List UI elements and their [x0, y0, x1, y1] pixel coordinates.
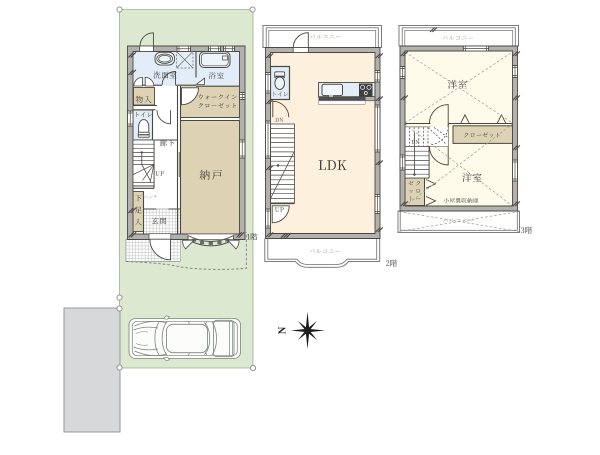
svg-text:N: N: [278, 326, 289, 334]
